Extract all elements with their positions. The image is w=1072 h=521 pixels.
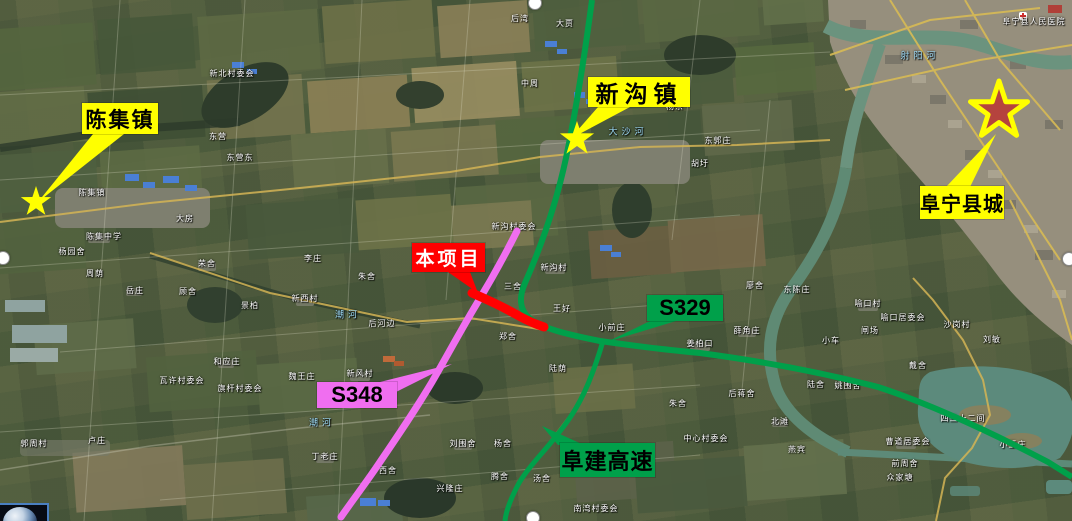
globe-icon [3,507,37,521]
earth-overview-thumbnail[interactable] [0,503,49,521]
callout-xingou-town: 新沟镇 [588,77,690,107]
route-project-line [472,293,544,327]
selection-handle-bottom[interactable] [526,511,540,521]
route-expressway-line [505,341,603,521]
funing-pointer [946,134,996,187]
chenji-star-icon [21,186,51,215]
route-s329-line [521,0,1072,477]
callout-route-s329: S329 [647,295,723,321]
callout-route-s348: S348 [317,382,397,408]
funing-star-icon [971,81,1028,135]
s329-pointer [607,321,676,342]
callout-chenji-town: 陈集镇 [82,103,158,134]
callout-fujian-expressway: 阜建高速 [560,443,655,477]
chenji-pointer [38,134,124,202]
callout-funing-county: 阜宁县城 [920,186,1004,219]
satellite-map-image[interactable]: 陈集镇陈集中学杨园舍周荫岳庄大房东营东营东新北村委会荣舍李庄朱舍顾舍景柏新西村后… [0,0,1072,521]
callout-project: 本项目 [412,243,485,272]
annotation-overlay [0,0,1072,521]
selection-handle-right[interactable] [1062,252,1072,266]
